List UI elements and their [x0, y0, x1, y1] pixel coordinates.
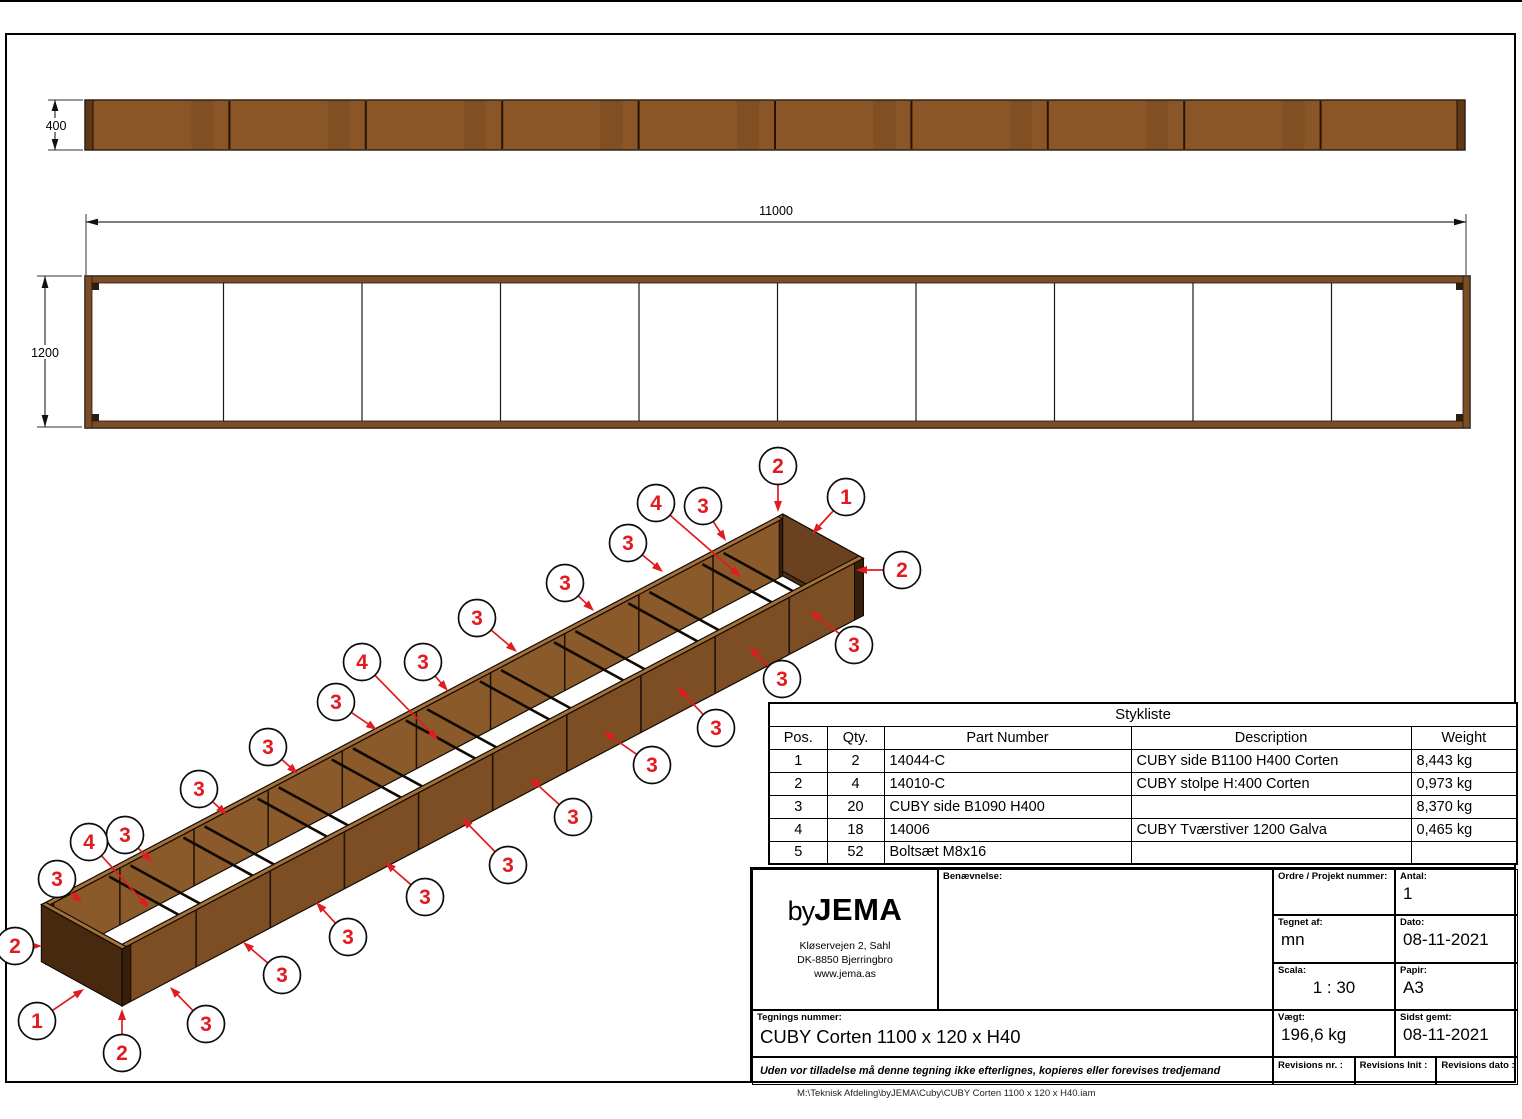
- svg-text:400: 400: [46, 119, 67, 133]
- parts-table-cell: CUBY Tværstiver 1200 Galva: [1131, 818, 1411, 841]
- parts-table-cell: [1131, 795, 1411, 818]
- dimension-11000: 11000: [86, 204, 1466, 275]
- parts-table-cell: Boltsæt M8x16: [884, 841, 1131, 864]
- parts-table-cell: 14006: [884, 818, 1131, 841]
- table-row: 1214044-CCUBY side B1100 H400 Corten8,44…: [769, 749, 1517, 772]
- parts-table-cell: 0,465 kg: [1411, 818, 1517, 841]
- papir-value: A3: [1396, 976, 1517, 998]
- balloon-1: 1: [812, 479, 865, 535]
- parts-table-header: Weight: [1411, 726, 1517, 749]
- front-view: [85, 100, 1465, 150]
- balloon-3: 3: [243, 942, 301, 994]
- balloon-3: 3: [547, 565, 595, 612]
- svg-text:3: 3: [776, 668, 788, 691]
- jema-logo: byJEMA: [753, 892, 937, 928]
- scala-label: Scala:: [1274, 964, 1394, 976]
- svg-text:4: 4: [83, 831, 95, 854]
- parts-table-cell: 2: [769, 772, 827, 795]
- svg-text:2: 2: [116, 1042, 128, 1065]
- parts-table: StyklistePos.Qty.Part NumberDescriptionW…: [768, 702, 1518, 865]
- balloon-3: 3: [385, 862, 444, 916]
- balloon-3: 3: [530, 778, 592, 836]
- file-path: M:\Teknisk Afdeling\byJEMA\Cuby\CUBY Cor…: [797, 1088, 1096, 1099]
- logo-by-text: by: [788, 896, 815, 926]
- scala-value: 1 : 30: [1274, 976, 1394, 998]
- table-row: 552Boltsæt M8x16: [769, 841, 1517, 864]
- svg-text:3: 3: [330, 691, 342, 714]
- svg-text:3: 3: [200, 1013, 212, 1036]
- svg-text:3: 3: [559, 572, 571, 595]
- logo-cell: byJEMA Kløservejen 2, Sahl DK-8850 Bjerr…: [752, 869, 938, 1010]
- svg-text:3: 3: [502, 854, 514, 877]
- tegnet-af-cell: Tegnet af: mn: [1273, 915, 1395, 963]
- vaegt-value: 196,6 kg: [1274, 1023, 1394, 1045]
- papir-cell: Papir: A3: [1395, 963, 1518, 1010]
- svg-text:3: 3: [342, 926, 354, 949]
- parts-table-cell: 8,370 kg: [1411, 795, 1517, 818]
- svg-text:4: 4: [650, 492, 662, 515]
- logo-jema-text: JEMA: [814, 892, 902, 927]
- balloon-3: 3: [462, 818, 527, 884]
- parts-table-cell: CUBY side B1100 H400 Corten: [1131, 749, 1411, 772]
- revisions-init-label: Revisions Init :: [1355, 1057, 1437, 1085]
- parts-table-cell: 14044-C: [884, 749, 1131, 772]
- dato-cell: Dato: 08-11-2021: [1395, 915, 1518, 963]
- svg-text:3: 3: [51, 868, 63, 891]
- balloon-3: 3: [170, 987, 225, 1043]
- parts-table-cell: 2: [827, 749, 884, 772]
- sidst-gemt-label: Sidst gemt:: [1396, 1011, 1517, 1023]
- dato-value: 08-11-2021: [1396, 928, 1517, 950]
- dato-label: Dato:: [1396, 916, 1517, 928]
- balloon-2: 2: [856, 552, 921, 589]
- table-row: 2414010-CCUBY stolpe H:400 Corten0,973 k…: [769, 772, 1517, 795]
- antal-label: Antal:: [1396, 870, 1517, 882]
- svg-text:1200: 1200: [31, 346, 59, 360]
- parts-table-cell: CUBY stolpe H:400 Corten: [1131, 772, 1411, 795]
- tegnings-nummer-label: Tegnings nummer:: [753, 1011, 1272, 1023]
- svg-text:4: 4: [356, 651, 368, 674]
- dimension-400: 400: [41, 100, 83, 150]
- scala-cell: Scala: 1 : 30: [1273, 963, 1395, 1010]
- parts-table-cell: 3: [769, 795, 827, 818]
- balloon-2: 2: [0, 928, 42, 965]
- svg-text:3: 3: [276, 964, 288, 987]
- parts-table-header: Pos.: [769, 726, 827, 749]
- svg-text:3: 3: [262, 736, 274, 759]
- benaevnelse-cell: Benævnelse:: [938, 869, 1273, 1010]
- svg-text:1: 1: [31, 1010, 43, 1033]
- sidst-gemt-cell: Sidst gemt: 08-11-2021: [1395, 1010, 1518, 1057]
- company-address: Kløservejen 2, Sahl DK-8850 Bjerringbro …: [753, 940, 937, 982]
- antal-cell: Antal: 1: [1395, 869, 1518, 915]
- svg-text:3: 3: [471, 607, 483, 630]
- svg-text:3: 3: [193, 778, 205, 801]
- parts-table-title: Stykliste: [769, 703, 1517, 726]
- balloon-3: 3: [250, 729, 299, 775]
- svg-text:3: 3: [697, 495, 709, 518]
- svg-text:3: 3: [710, 717, 722, 740]
- balloon-3: 3: [39, 861, 83, 904]
- svg-text:11000: 11000: [759, 204, 793, 218]
- balloon-1: 1: [19, 989, 85, 1040]
- dimension-1200: 1200: [28, 276, 82, 427]
- parts-table-cell: 4: [827, 772, 884, 795]
- parts-table-cell: CUBY side B1090 H400: [884, 795, 1131, 818]
- disclaimer-cell: Uden vor tilladelse må denne tegning ikk…: [752, 1057, 1273, 1085]
- svg-text:3: 3: [417, 651, 429, 674]
- balloon-3: 3: [405, 644, 449, 692]
- balloon-3: 3: [107, 817, 153, 863]
- tegnings-nummer-cell: Tegnings nummer: CUBY Corten 1100 x 120 …: [752, 1010, 1273, 1057]
- parts-table-cell: 18: [827, 818, 884, 841]
- vaegt-cell: Vægt: 196,6 kg: [1273, 1010, 1395, 1057]
- table-row: 41814006CUBY Tværstiver 1200 Galva0,465 …: [769, 818, 1517, 841]
- svg-text:3: 3: [622, 532, 634, 555]
- sidst-gemt-value: 08-11-2021: [1396, 1023, 1517, 1045]
- revisions-nr-label: Revisions nr. :: [1273, 1057, 1355, 1085]
- balloon-3: 3: [181, 771, 228, 816]
- ordre-label: Ordre / Projekt nummer:: [1274, 870, 1394, 882]
- drawing-number: CUBY Corten 1100 x 120 x H40: [753, 1023, 1272, 1047]
- parts-table-cell: 52: [827, 841, 884, 864]
- address-line: DK-8850 Bjerringbro: [753, 954, 937, 968]
- benaevnelse-label: Benævnelse:: [939, 870, 1272, 882]
- parts-table-header: Part Number: [884, 726, 1131, 749]
- title-block: byJEMA Kløservejen 2, Sahl DK-8850 Bjerr…: [750, 867, 1516, 1083]
- balloon-3: 3: [459, 600, 518, 653]
- svg-text:3: 3: [419, 886, 431, 909]
- parts-table-cell: 14010-C: [884, 772, 1131, 795]
- parts-table-cell: 4: [769, 818, 827, 841]
- balloon-3: 3: [316, 902, 367, 956]
- ordre-value: [1274, 882, 1394, 884]
- parts-table-header: Qty.: [827, 726, 884, 749]
- parts-table-cell: 5: [769, 841, 827, 864]
- parts-table-header: Description: [1131, 726, 1411, 749]
- svg-text:3: 3: [646, 754, 658, 777]
- balloon-2: 2: [760, 448, 797, 513]
- vaegt-label: Vægt:: [1274, 1011, 1394, 1023]
- revisions-dato-label: Revisions dato :: [1436, 1057, 1518, 1085]
- address-line: Kløservejen 2, Sahl: [753, 940, 937, 954]
- tegnet-af-value: mn: [1274, 928, 1394, 950]
- antal-value: 1: [1396, 882, 1517, 904]
- svg-text:2: 2: [896, 559, 908, 582]
- parts-table-cell: 0,973 kg: [1411, 772, 1517, 795]
- plan-view: [85, 276, 1470, 428]
- papir-label: Papir:: [1396, 964, 1517, 976]
- revisions-row: Revisions nr. : Revisions Init : Revisio…: [1273, 1057, 1518, 1085]
- balloon-3: 3: [603, 731, 671, 784]
- parts-table-cell: 1: [769, 749, 827, 772]
- parts-table-cell: 8,443 kg: [1411, 749, 1517, 772]
- address-line: www.jema.as: [753, 968, 937, 982]
- isometric-view: [41, 514, 863, 1006]
- parts-table-cell: [1131, 841, 1411, 864]
- ordre-cell: Ordre / Projekt nummer:: [1273, 869, 1395, 915]
- parts-table-cell: [1411, 841, 1517, 864]
- svg-text:2: 2: [772, 455, 784, 478]
- balloon-2: 2: [104, 1009, 141, 1072]
- balloon-3: 3: [318, 684, 378, 731]
- svg-text:3: 3: [848, 634, 860, 657]
- svg-text:2: 2: [9, 935, 21, 958]
- table-row: 320CUBY side B1090 H400 8,370 kg: [769, 795, 1517, 818]
- parts-table-cell: 20: [827, 795, 884, 818]
- svg-text:3: 3: [119, 824, 131, 847]
- svg-text:3: 3: [567, 806, 579, 829]
- tegnet-af-label: Tegnet af:: [1274, 916, 1394, 928]
- svg-text:1: 1: [840, 486, 852, 509]
- disclaimer-text: Uden vor tilladelse må denne tegning ikk…: [753, 1065, 1220, 1077]
- balloon-3: 3: [610, 525, 664, 573]
